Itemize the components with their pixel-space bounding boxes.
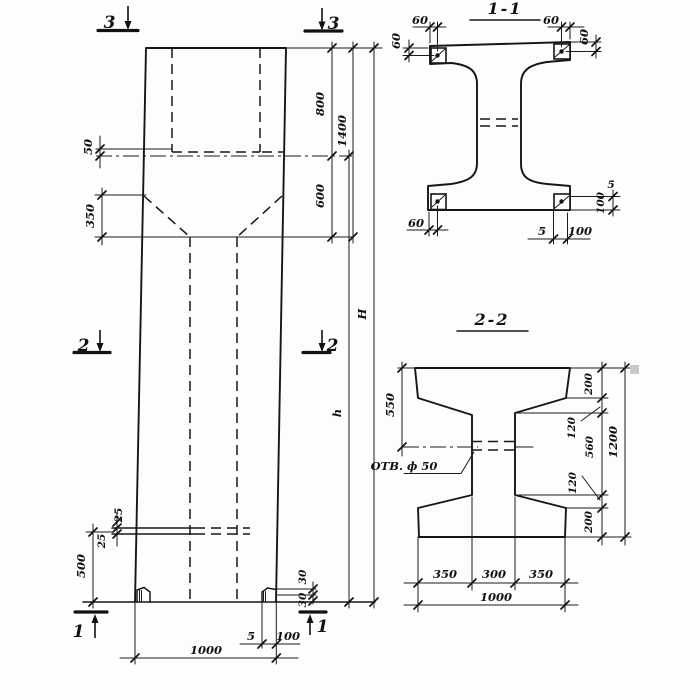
marker-label: 2 (326, 336, 340, 356)
dim-5-right: 5 (607, 179, 614, 191)
hidden-lines (144, 48, 283, 602)
down-arrow-icon (319, 22, 326, 31)
dim-200-top-label: 200 (583, 372, 595, 396)
dim-1000-label: 1000 (190, 643, 222, 657)
column-outline (135, 48, 286, 602)
dim-500-label: 500 (74, 554, 88, 578)
dim-1200-label: 1200 (606, 426, 620, 458)
drawing-sheet: 50 350 800 1400 600 h H 25 25 500 30 30 … (0, 0, 700, 700)
dim-600-label: 600 (313, 184, 327, 208)
section-marker-3-left: 3 (98, 6, 138, 33)
left-foot (137, 588, 150, 603)
dim-100-label: 100 (276, 629, 300, 643)
section-marker-1-right: 1 (300, 612, 329, 637)
marker-label: 1 (317, 617, 330, 637)
section-outline (415, 368, 570, 537)
dim-1400-label: 1400 (335, 115, 349, 147)
hole-label: ОТВ. ф 50 (371, 459, 438, 473)
dim-100-right: 100 (595, 191, 607, 214)
dim-350-label: 350 (83, 204, 97, 228)
foot-shoe-plates (140, 590, 266, 602)
dim-60-top-left-h: 60 (412, 13, 428, 27)
dim-560-label: 560 (584, 435, 596, 458)
dim-1000-label: 1000 (480, 590, 512, 604)
dim-100-bottom: 100 (568, 224, 592, 238)
section-1-1-view: 1-1 60 60 60 60 60 5 100 5 100 (389, 0, 620, 244)
elevation-view: 50 350 800 1400 600 h H 25 25 500 30 30 … (73, 6, 382, 664)
dim-30-lower-label: 30 (297, 592, 309, 607)
embedded-plate-lines (112, 528, 195, 534)
section-marker-2-right: 2 (303, 330, 339, 356)
anchor-dot (435, 199, 439, 203)
dim-350-right-label: 350 (529, 567, 553, 581)
anchor-dot (559, 49, 563, 53)
hole-hidden-lines (472, 442, 516, 451)
dim-60-top-right-v: 60 (577, 29, 591, 45)
anchor-dot (435, 53, 439, 57)
dim-5-label: 5 (247, 629, 255, 643)
dim-25-upper-label: 25 (113, 508, 125, 524)
section-2-2-view: 2-2 ОТВ. ф 50 550 200 120 560 120 200 12… (371, 310, 639, 612)
dim-550-label: 550 (383, 393, 397, 417)
dim-350-left-label: 350 (433, 567, 457, 581)
marker-label: 3 (328, 14, 341, 34)
dim-25-lower-label: 25 (96, 534, 108, 550)
dim-h-label: h (330, 409, 344, 417)
dim-60-bottom: 60 (408, 216, 424, 230)
marker-label: 1 (73, 622, 86, 642)
dim-800-label: 800 (313, 92, 327, 116)
dim-60-top-left-v: 60 (389, 33, 403, 49)
section-marker-1-left: 1 (73, 612, 107, 642)
up-arrow-icon (92, 614, 99, 623)
up-arrow-icon (307, 614, 314, 623)
section-title: 1-1 (488, 0, 523, 18)
dim-60-top-right-h: 60 (543, 13, 559, 27)
down-arrow-icon (319, 343, 326, 352)
dim-120-top-label: 120 (566, 416, 578, 439)
dim-300-label: 300 (482, 567, 506, 581)
section-title: 2-2 (474, 310, 510, 329)
anchor-dot (559, 199, 563, 203)
down-arrow-icon (97, 343, 104, 352)
section-marker-2-left: 2 (74, 330, 110, 356)
technical-drawing: 50 350 800 1400 600 h H 25 25 500 30 30 … (0, 0, 700, 700)
dim-200-bottom-label: 200 (583, 510, 595, 534)
dim-H-label: H (355, 307, 369, 320)
web-hole-hidden-lines (480, 119, 518, 126)
down-arrow-icon (125, 21, 132, 30)
dim-30-upper-label: 30 (297, 569, 309, 584)
dim-120-bottom-label: 120 (567, 471, 579, 494)
section-marker-3-right: 3 (305, 8, 342, 34)
right-foot (262, 588, 276, 602)
dim-50-label: 50 (81, 139, 95, 155)
scan-artifact (630, 365, 639, 374)
dim-5-bottom: 5 (538, 224, 546, 238)
